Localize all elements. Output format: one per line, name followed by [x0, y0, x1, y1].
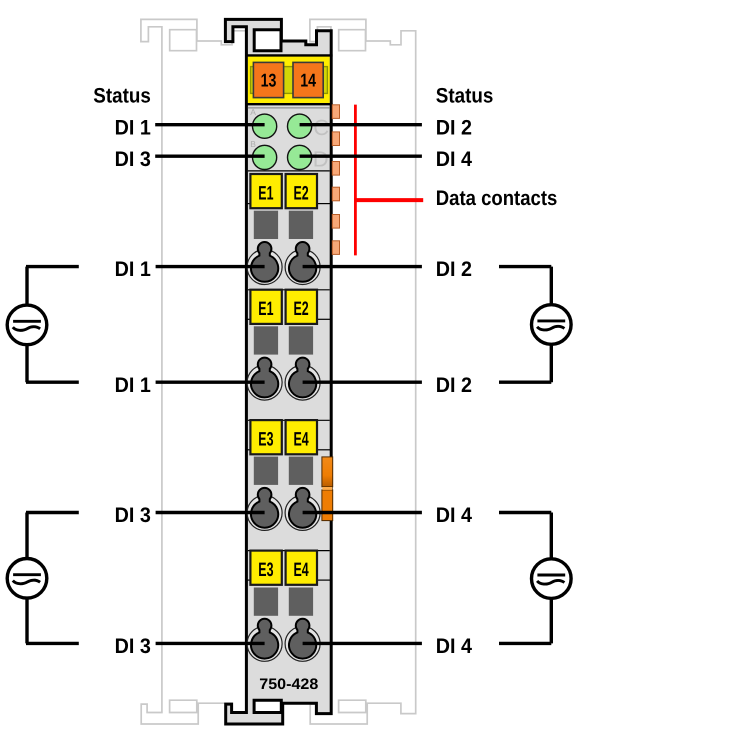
svg-text:E4: E4 — [294, 428, 309, 450]
svg-text:DI 4: DI 4 — [436, 504, 472, 527]
svg-text:A: A — [250, 107, 256, 117]
svg-text:13: 13 — [261, 70, 277, 91]
svg-text:DI 3: DI 3 — [115, 504, 151, 527]
svg-text:E1: E1 — [258, 298, 273, 320]
svg-text:DI 4: DI 4 — [436, 148, 472, 171]
svg-text:DI 3: DI 3 — [115, 148, 151, 171]
svg-text:D: D — [313, 146, 329, 171]
svg-text:E3: E3 — [258, 559, 273, 581]
svg-text:DI 2: DI 2 — [436, 117, 472, 140]
svg-text:Status: Status — [436, 85, 494, 108]
svg-text:DI 3: DI 3 — [115, 635, 151, 658]
svg-text:DI 4: DI 4 — [436, 635, 472, 658]
svg-text:E4: E4 — [294, 559, 309, 581]
svg-text:Data contacts: Data contacts — [436, 187, 558, 210]
svg-text:E2: E2 — [294, 182, 309, 204]
svg-text:B: B — [250, 139, 256, 149]
svg-text:DI 2: DI 2 — [436, 258, 472, 281]
svg-text:E3: E3 — [258, 428, 273, 450]
svg-text:DI 1: DI 1 — [115, 258, 151, 281]
svg-text:750-428: 750-428 — [259, 676, 318, 693]
svg-text:E1: E1 — [258, 182, 273, 204]
svg-text:14: 14 — [300, 70, 316, 91]
svg-text:E2: E2 — [294, 298, 309, 320]
svg-text:DI 1: DI 1 — [115, 117, 151, 140]
svg-text:DI 1: DI 1 — [115, 374, 151, 397]
svg-text:DI 2: DI 2 — [436, 374, 472, 397]
svg-text:Status: Status — [93, 85, 151, 108]
svg-text:C: C — [313, 115, 329, 140]
